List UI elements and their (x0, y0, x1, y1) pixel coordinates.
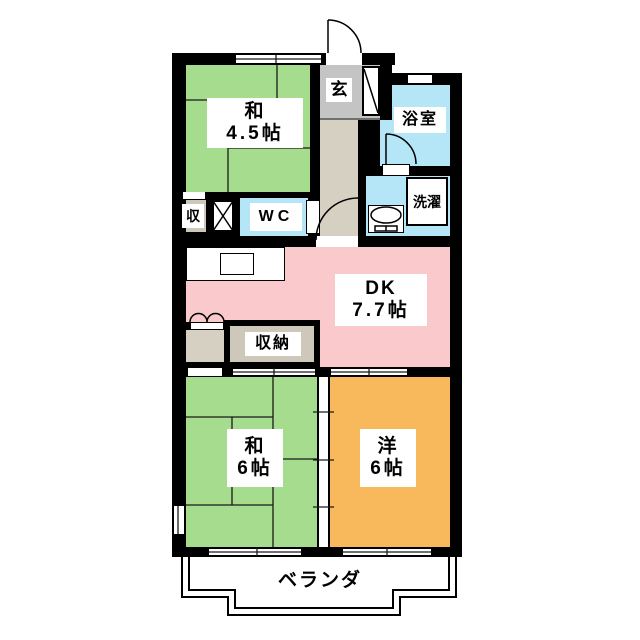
room-hallway (320, 120, 358, 236)
wall-hall-washroom (358, 120, 366, 236)
sliding-partition (317, 377, 330, 547)
label-veranda: ベランダ (260, 568, 380, 594)
wall-left (172, 53, 186, 557)
japanese6-sliding-opening (232, 368, 316, 376)
room-dk-lower (320, 322, 450, 367)
wall-above-bedrooms (182, 367, 450, 377)
western6-sliding-opening (330, 368, 408, 376)
window-balcony-left (208, 548, 302, 556)
label-storage-closet: 収納 (245, 332, 301, 356)
room-alcove (186, 330, 224, 362)
alcove-bottom-opening (188, 368, 222, 376)
label-genkan: 玄 (326, 78, 352, 102)
label-japanese-4-5: 和 4.5帖 (207, 98, 303, 148)
shoe-cabinet (362, 66, 380, 116)
kitchen-sink (220, 253, 254, 275)
alcove-door-sill (190, 322, 224, 330)
window-top (235, 54, 322, 64)
label-dk: DK 7.7帖 (335, 274, 427, 326)
window-left (173, 505, 185, 535)
window-balcony-right (342, 548, 432, 556)
washbasin (368, 205, 404, 233)
wall-genkan-right (380, 53, 392, 120)
entrance-door-arc (328, 20, 361, 53)
pipe-space-box (212, 200, 234, 232)
floor-plan: 洗濯 (0, 0, 640, 640)
entrance-opening (326, 53, 362, 65)
bathroom-door-sill (382, 164, 410, 176)
laundry-label: 洗濯 (413, 192, 441, 212)
wall-under-genkan (366, 120, 380, 176)
dk-door-opening (316, 236, 358, 247)
label-wc: WC (250, 203, 302, 231)
storage-small-opening (183, 192, 205, 199)
label-japanese-6: 和 6帖 (227, 429, 283, 487)
wall-right (450, 73, 462, 557)
window-bathroom (407, 74, 433, 84)
label-bathroom: 浴室 (394, 107, 446, 133)
washing-machine: 洗濯 (406, 177, 448, 226)
wc-door (306, 200, 320, 234)
label-western-6: 洋 6帖 (360, 429, 416, 487)
label-storage-small: 収 (182, 204, 204, 228)
